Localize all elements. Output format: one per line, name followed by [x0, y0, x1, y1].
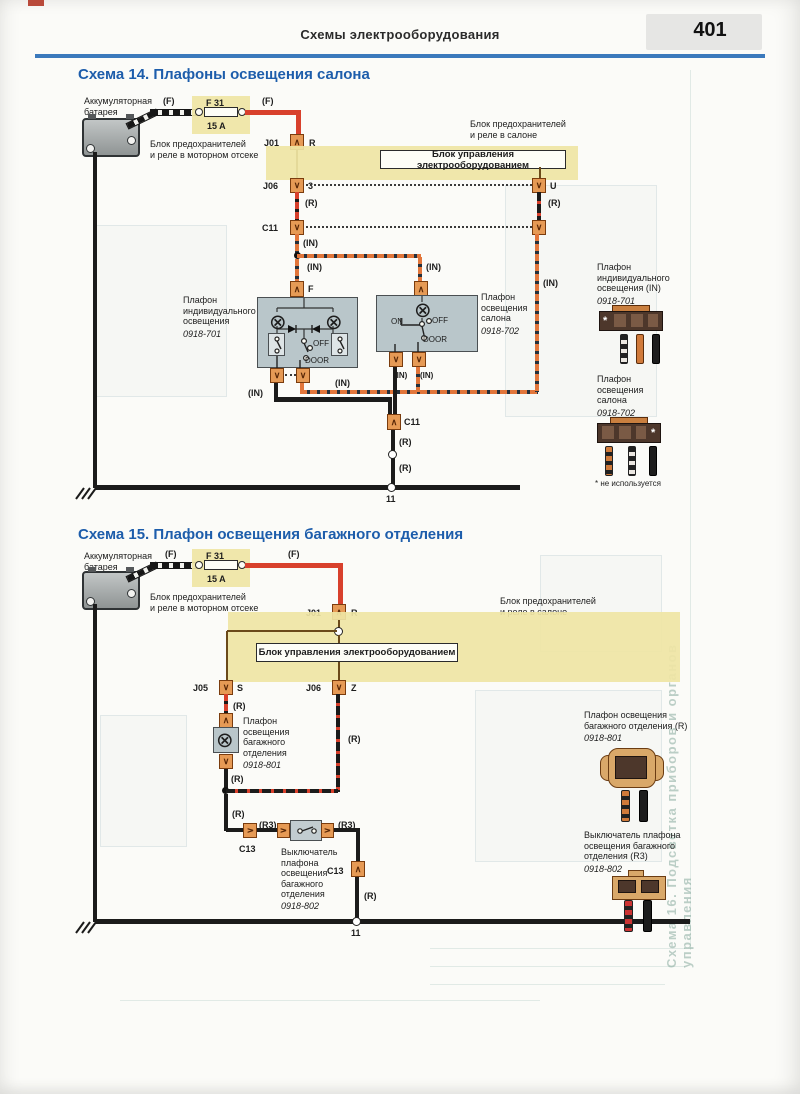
lamp2-code-14: 0918-702: [481, 326, 519, 337]
battery-terminal-nub: [88, 567, 96, 572]
bleed-artifact: [120, 1000, 540, 1001]
legend-wire-stub: [621, 790, 630, 822]
header-rule: [35, 54, 765, 58]
connector-row-dotted-line: [306, 226, 532, 228]
connector-lamp2-bottom-14: [412, 352, 426, 367]
connector-u-pin-14: U: [550, 181, 557, 191]
wire-code-in: (IN): [426, 262, 441, 273]
wire-code-r: (R): [348, 734, 361, 745]
wire-in-bus-top: [297, 254, 421, 258]
wire-code-r: (R): [548, 198, 561, 209]
wire-ground-run: [388, 400, 392, 414]
connector-c13-bottom: [351, 861, 365, 877]
wire-r-right: [537, 192, 541, 222]
legend-wire-stub: [620, 334, 628, 364]
connector-c11-label-14: C11: [262, 223, 278, 233]
engine-fusebox-label-14: Блок предохранителей и реле в моторном о…: [150, 139, 258, 160]
wire-code-r: (R): [233, 701, 246, 712]
connector-c11-right-14: [532, 220, 546, 235]
bleed-artifact: [430, 948, 685, 949]
connector-c11-left-14: [290, 220, 304, 235]
trunk-switch-code: 0918-802: [281, 901, 319, 912]
scanned-manual-page: Схема 16. Подсветка приборов и органов у…: [0, 0, 800, 1094]
wire-r: [224, 794, 228, 831]
fuse-terminal-icon: [195, 108, 203, 116]
legend2-label-15: Выключатель плафона освещения багажного …: [584, 830, 681, 862]
battery-terminal-icon: [127, 136, 136, 145]
connector-c11-bottom-label-14: C11: [404, 417, 420, 427]
battery-terminal-icon: [127, 589, 136, 598]
wire-splice-j05: [227, 630, 337, 632]
connector-c13-left: [243, 823, 257, 838]
connector-f-pin-14: F: [308, 284, 314, 294]
legend-wire-stub: [652, 334, 660, 364]
wire-in-right: [535, 234, 539, 392]
legend-connector-slot: [602, 426, 614, 439]
bleed-artifact: [100, 715, 187, 847]
wire-in: [295, 259, 299, 283]
trunk-lamp-connector-slot: [615, 756, 647, 779]
connector-switch-right: [321, 823, 334, 838]
legend2-label-14: Плафон освещения салона: [597, 374, 643, 406]
lamp1-label-14: Плафон индивидуального освещения: [183, 295, 256, 327]
wire-code-f: (F): [165, 549, 177, 560]
lamp-icon: ⊗: [414, 300, 432, 321]
connector-row-dotted-line: [285, 374, 296, 376]
lamp-individual-box-14: ⊗ ⊗ OFF DOOR: [257, 297, 358, 368]
connector-c11-bottom-14: [387, 414, 401, 430]
wire-code-in: (IN): [303, 238, 318, 249]
legend1-label-15: Плафон освещения багажного отделения (R): [584, 710, 687, 731]
lamp-icon: ⊗: [325, 312, 343, 333]
fuse-rating-14: 15 A: [207, 121, 226, 132]
ground-node-14: 11: [386, 494, 396, 504]
wire-switch-run: [356, 828, 360, 863]
connector-lamp1-bottom-14: [296, 368, 310, 383]
ground-bus-14: [95, 485, 520, 490]
lamp-icon: ⊗: [269, 312, 287, 333]
connector-row-dotted-line: [306, 184, 532, 186]
connector-c13-bottom-label: C13: [327, 866, 344, 876]
connector-j06-pin-14: 3: [308, 181, 313, 191]
connector-j06-15: [332, 680, 346, 695]
ground-bus-15: [95, 919, 690, 924]
ground-symbol-icon: [72, 486, 98, 502]
engine-fusebox-label-15: Блок предохранителей и реле в моторном о…: [150, 592, 258, 613]
not-used-star-icon: *: [651, 428, 655, 439]
switch-pos-off: OFF: [313, 339, 329, 348]
legend-connector-slot: [614, 314, 626, 327]
legend-wire-stub: [605, 446, 613, 476]
ground-node-15: 11: [351, 928, 361, 938]
legend2-code-15: 0918-802: [584, 864, 622, 875]
bleed-artifact: [430, 984, 665, 985]
trunk-lamp-label: Плафон освещения багажного отделения: [243, 716, 289, 758]
connector-j05-label-15: J05: [193, 683, 208, 693]
legend-footnote-14: * не используется: [595, 479, 661, 488]
door-switch-icon: [268, 333, 285, 356]
wire-f-red: [245, 563, 343, 568]
schema15-title: Схема 15. Плафон освещения багажного отд…: [78, 526, 463, 543]
wire-splice-j05: [226, 631, 228, 680]
trunk-lamp-box: ⊗: [213, 727, 239, 753]
trunk-switch-connector-slot: [641, 880, 659, 893]
legend-connector-slot: [636, 426, 646, 439]
door-switch-icon: [331, 333, 348, 356]
connector-switch-left: [277, 823, 290, 838]
battery-terminal-nub: [88, 114, 96, 119]
connector-j06-14: [290, 178, 304, 193]
legend-wire-stub: [636, 334, 644, 364]
trunk-switch-connector-slot: [618, 880, 636, 893]
switch-pos-off: OFF: [432, 316, 448, 325]
connector-trunk-lamp-bottom: [219, 754, 233, 769]
wire-code-r: (R): [399, 437, 412, 448]
splice-node-open: [387, 483, 396, 492]
wire-f-red: [245, 110, 301, 115]
wire-in: [416, 367, 420, 392]
wire-r: [355, 877, 359, 922]
switch-pos-door: DOOR: [305, 356, 329, 365]
page-number: 401: [660, 19, 760, 42]
legend-wire-stub: [643, 900, 652, 932]
fuse-rating-15: 15 A: [207, 574, 226, 585]
wire-r-from-j06: [336, 694, 340, 792]
wire-in: [418, 257, 422, 283]
wire-code-in: (IN): [307, 262, 322, 273]
wire-code-f: (F): [288, 549, 300, 560]
wire-switch-run: [226, 828, 244, 832]
wire-r-horizontal: [226, 789, 338, 793]
wire-code-r: (R): [305, 198, 318, 209]
splice-node-open: [352, 917, 361, 926]
cabin-fusebox-label-14: Блок предохранителей и реле в салоне: [470, 119, 566, 140]
legend-wire-stub: [649, 446, 657, 476]
lamp-icon: ⊗: [216, 730, 234, 751]
schema14-title: Схема 14. Плафоны освещения салона: [78, 66, 370, 83]
scan-corner-mark: [28, 0, 44, 6]
splice-node-open: [388, 450, 397, 459]
fuse-body-icon: [204, 107, 238, 117]
wire-code-f: (F): [262, 96, 274, 107]
bleed-through-text: Схема 16. Подсветка приборов и органов у…: [664, 548, 694, 968]
connector-lamp2-bottom-14: [389, 352, 403, 367]
wire-code-in: (IN): [248, 388, 263, 399]
legend1-code-15: 0918-801: [584, 733, 622, 744]
connector-lamp1-bottom-14: [270, 368, 284, 383]
connector-j06-label-14: J06: [263, 181, 278, 191]
lamp1-code-14: 0918-701: [183, 329, 221, 340]
connector-j06-label-15: J06: [306, 683, 321, 693]
not-used-star-icon: *: [603, 316, 607, 327]
legend-wire-stub: [639, 790, 648, 822]
wire-f-red: [338, 563, 343, 605]
fuse-terminal-icon: [195, 561, 203, 569]
wire-r-left: [295, 192, 299, 222]
wire-code-r: (R): [232, 809, 245, 820]
legend-connector-slot: [631, 314, 643, 327]
battery-ground-wire-14: [93, 152, 97, 488]
lamp2-label-14: Плафон освещения салона: [481, 292, 527, 324]
legend-connector-slot: [619, 426, 631, 439]
page-header: Схемы электрооборудования: [250, 27, 550, 42]
wire-code-in: (IN): [420, 371, 433, 380]
wire-code-in: (IN): [543, 278, 558, 289]
wire-ground-run: [274, 397, 392, 402]
control-unit-box-15: Блок управления электрооборудованием: [256, 643, 458, 662]
switch-pos-door: DOOR: [423, 335, 447, 344]
connector-trunk-lamp-top: [219, 713, 233, 728]
wire-switch-run: [257, 828, 279, 832]
connector-j05-15: [219, 680, 233, 695]
connector-c13-label: C13: [239, 844, 256, 854]
legend-wire-stub: [628, 446, 636, 476]
wire-ground-run: [393, 367, 397, 414]
legend-connector-slot: [648, 314, 658, 327]
wire-ctrl-u: [539, 167, 541, 178]
ground-symbol-icon: [72, 920, 98, 936]
bleed-artifact: [430, 966, 685, 967]
lamp-cabin-box-14: ⊗ ON OFF DOOR: [376, 295, 478, 352]
wire-code-r: (R): [364, 891, 377, 902]
battery-ground-wire-15: [93, 604, 97, 922]
wire-code-r: (R): [231, 774, 244, 785]
wire-ground-run: [391, 430, 395, 488]
switch-pos-on: ON: [391, 317, 403, 326]
connector-j06-pin-15: Z: [351, 683, 357, 693]
fuse-body-icon: [204, 560, 238, 570]
wire-code-r: (R): [399, 463, 412, 474]
trunk-lamp-code: 0918-801: [243, 760, 281, 771]
legend1-label-14: Плафон индивидуального освещения (IN): [597, 262, 670, 294]
connector-u-14: [532, 178, 546, 193]
legend-wire-stub: [624, 900, 633, 932]
wire-code-f: (F): [163, 96, 175, 107]
wire-code-in: (IN): [335, 378, 350, 389]
wire-f-red: [296, 110, 301, 135]
wire-r: [224, 694, 228, 714]
connector-f-14: [290, 281, 304, 297]
trunk-switch-box: [290, 820, 322, 841]
connector-j05-pin-15: S: [237, 683, 243, 693]
